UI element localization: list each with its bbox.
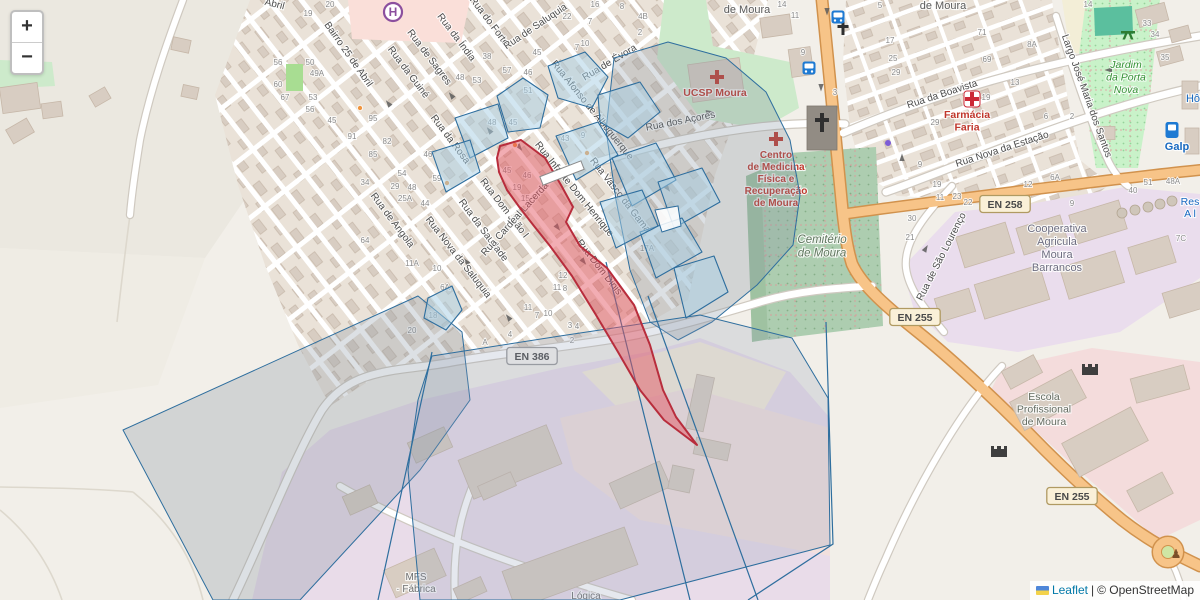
house-number: 11 [524,303,533,312]
leaflet-link[interactable]: Leaflet [1052,583,1088,597]
house-number: 2 [1070,112,1075,121]
house-number: 60 [274,80,283,89]
house-number: 11A [405,259,419,268]
house-number: 11 [553,283,562,292]
house-number: 19 [933,180,942,189]
area-label: Farmácia [944,109,990,121]
svg-text:EN 255: EN 255 [897,312,932,324]
house-number: 25A [398,194,413,203]
house-number: 12 [1024,180,1033,189]
house-number: 56 [274,58,283,67]
house-number: 71 [978,28,987,37]
house-number: 91 [348,132,357,141]
house-number: 10 [544,309,553,318]
pharmacy-icon [964,91,980,107]
house-number: 5 [878,1,883,10]
house-number: 44 [421,199,430,208]
house-number: 46 [424,150,433,159]
map-canvas[interactable]: EN 386EN 258EN 255EN 2552019565049A60675… [0,0,1200,600]
house-number: 3 [833,88,838,97]
ukraine-flag-icon [1036,586,1049,595]
house-number: 12 [559,271,568,280]
house-number: 21 [906,233,915,242]
house-number: 85 [369,150,378,159]
house-number: 19 [982,93,991,102]
osm-attribution-text: © OpenStreetMap [1097,583,1194,597]
house-number: 57 [503,66,512,75]
house-number: 29 [391,182,400,191]
house-number: 48 [408,183,417,192]
house-number: 35 [1161,53,1170,62]
house-number: 38 [483,52,492,61]
house-number: 7 [575,43,580,52]
house-number: 56 [306,105,315,114]
house-number: 7 [588,17,593,26]
zoom-out-button[interactable]: − [12,43,42,73]
house-number: 22 [964,198,973,207]
house-number: 19 [304,9,313,18]
area-label: Moura [1041,249,1073,261]
house-number: 7C [1176,234,1186,243]
house-number: 82 [383,137,392,146]
area-label: Escola [1028,391,1060,403]
parcel-overlay-polygon[interactable] [408,315,830,600]
house-number: 53 [309,93,318,102]
area-label: de Moura [798,248,847,260]
pdot-icon [885,140,891,146]
area-label: Hô [1186,93,1200,105]
area-label: Profissional [1017,404,1071,416]
area-label: Jardim [1109,59,1142,71]
house-number: 49A [310,69,325,78]
house-number: 48A [1166,177,1181,186]
house-number: 17 [886,36,895,45]
area-label: Cemitério [797,234,847,246]
bus-icon [832,11,845,24]
house-number: 67 [281,93,290,102]
house-number: 3 [568,321,573,330]
house-number: 33 [1143,19,1152,28]
house-number: 11 [936,193,945,202]
house-number: 8 [620,2,625,11]
house-number: 29 [892,68,901,77]
house-number: 25 [889,54,898,63]
area-label: Agricula [1037,236,1078,248]
house-number: 16 [591,0,600,9]
house-number: 53 [473,76,482,85]
svg-text:EN 255: EN 255 [1054,491,1089,503]
house-number: 34 [1151,30,1160,39]
house-number: 95 [369,114,378,123]
area-label: A l [1184,208,1196,220]
house-number: 13 [1011,78,1020,87]
fuel-icon [1166,122,1179,138]
map-viewport[interactable]: EN 386EN 258EN 255EN 2552019565049A60675… [0,0,1200,600]
svg-text:H: H [389,5,398,19]
house-number: 34 [361,178,370,187]
house-number: 7 [535,311,540,320]
house-number: 14 [778,0,787,9]
house-number: 45 [533,48,542,57]
svg-text:EN 258: EN 258 [987,199,1022,211]
house-number: 54 [398,169,407,178]
svg-text:♟: ♟ [1171,547,1182,561]
house-number: 4 [575,322,580,331]
hospital-icon: H [384,3,402,21]
house-number: 14 [1084,0,1093,9]
house-number: 10 [433,264,442,273]
area-label: Faria [954,122,979,134]
house-number: 29 [931,118,940,127]
area-label: Nova [1114,84,1139,96]
attribution-bar: Leaflet|© OpenStreetMap [1030,581,1200,600]
house-number: 6A [1050,173,1060,182]
monument-icon: ♟ [1171,547,1182,561]
area-label: de Moura [1022,416,1067,428]
house-number: 48 [456,73,465,82]
landuse-area [286,64,303,91]
area-label: Cooperativa [1027,223,1087,235]
castle-icon [991,446,1007,457]
house-number: 9 [1070,199,1075,208]
house-number: 4B [638,12,648,21]
house-number: 30 [908,214,917,223]
house-number: 20 [326,0,335,9]
house-number: 64 [361,236,370,245]
house-number: 8A [1027,40,1037,49]
house-number: 51 [1144,178,1153,187]
area-label: de Moura [724,4,771,16]
house-number: 45 [328,116,337,125]
house-number: 11 [791,11,800,20]
house-number: 2 [638,28,643,37]
house-number: 10 [581,39,590,48]
attribution-divider: | [1091,583,1094,597]
house-number: 9 [918,160,923,169]
house-number: 46 [524,68,533,77]
area-label: Res [1181,196,1200,208]
house-number: 40 [1129,186,1138,195]
house-number: 23 [953,192,962,201]
house-number: 9 [801,48,806,57]
house-number: 8 [563,284,568,293]
bus-icon [803,62,816,75]
area-label: da Porta [1106,72,1146,84]
house-number: 4 [508,330,513,339]
zoom-control: + − [10,10,44,75]
house-number: 50 [306,58,315,67]
house-number: 69 [983,55,992,64]
house-number: A [482,338,488,347]
house-number: 6 [1044,112,1049,121]
area-label: Barrancos [1032,262,1083,274]
zoom-in-button[interactable]: + [12,12,42,43]
area-label: de Moura [920,0,967,12]
castle-icon [1082,364,1098,375]
area-label: Galp [1165,141,1190,153]
